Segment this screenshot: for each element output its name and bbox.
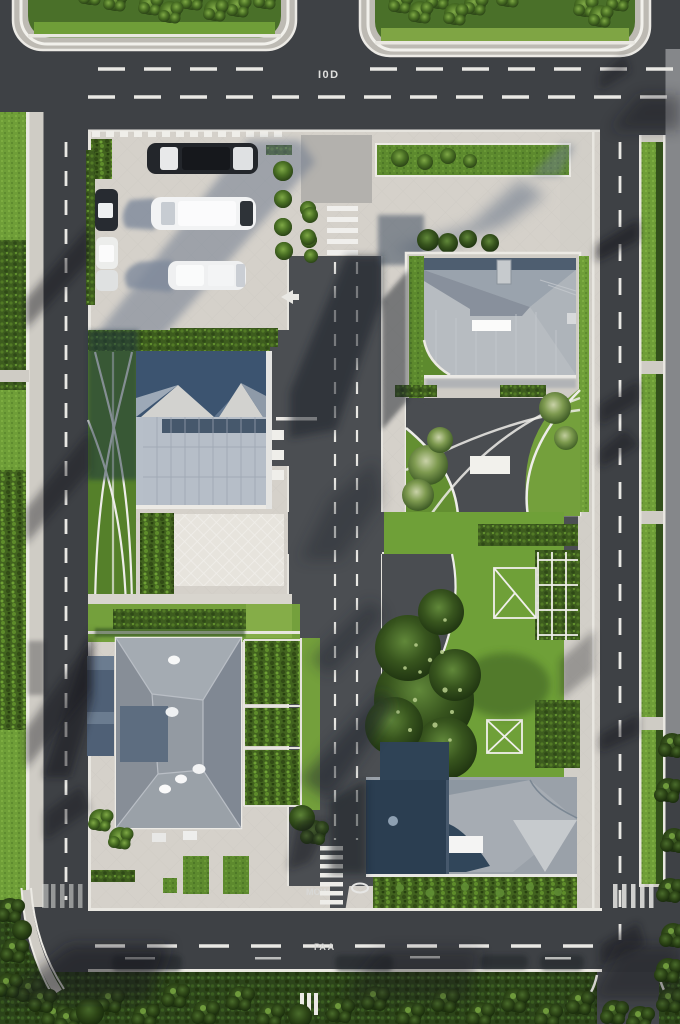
- svg-text:PA A: PA A: [314, 942, 335, 952]
- svg-text:I0D: I0D: [318, 69, 340, 81]
